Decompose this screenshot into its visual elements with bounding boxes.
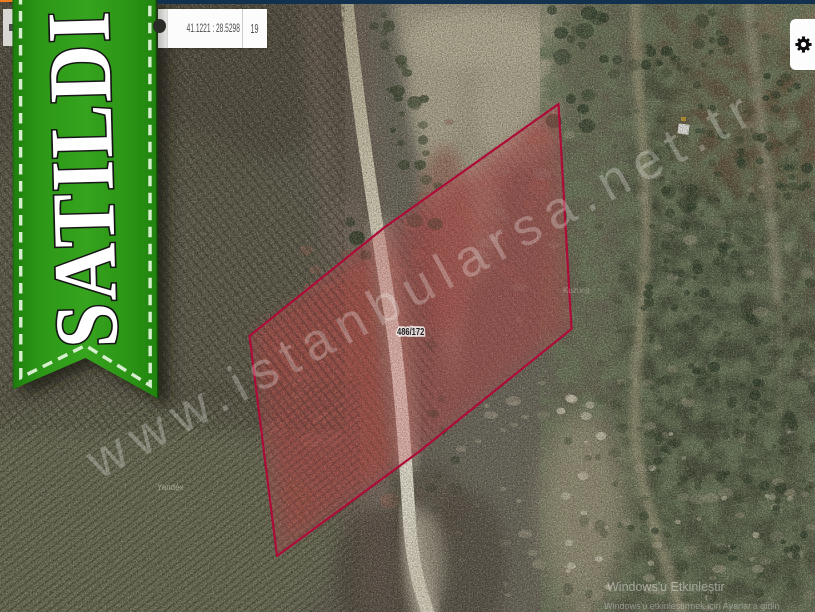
svg-text:Kuzucu: Kuzucu [563, 286, 590, 295]
svg-text:SATILDI: SATILDI [29, 8, 137, 349]
svg-text:Yandex: Yandex [157, 483, 184, 492]
svg-text:486/172: 486/172 [397, 326, 424, 337]
